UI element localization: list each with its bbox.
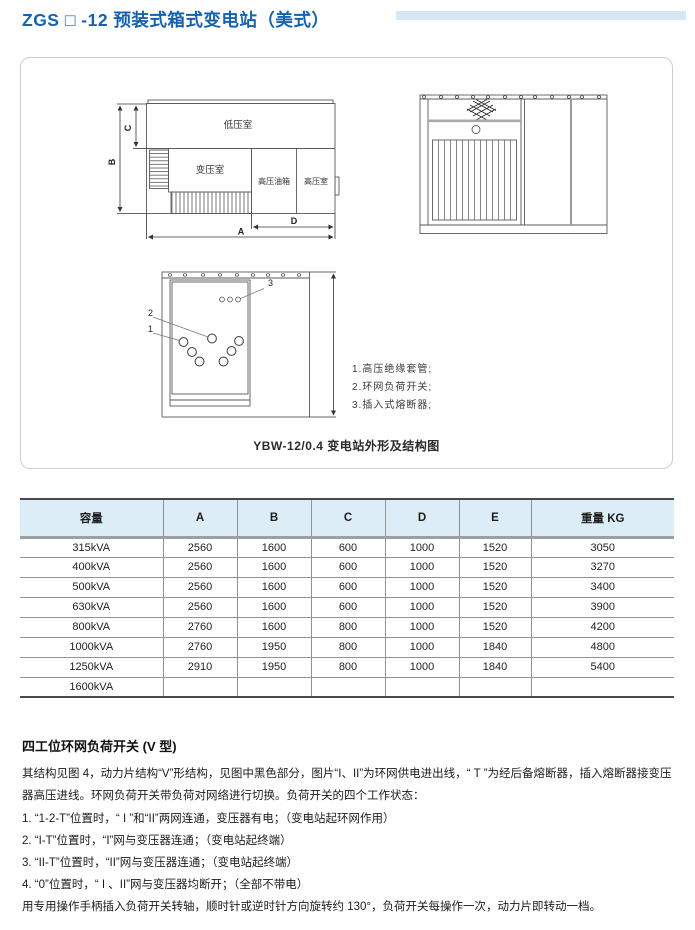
- cell-d: 1000: [385, 597, 459, 617]
- cell-e: 1520: [459, 557, 531, 577]
- table-row: 630kVA 2560 1600 600 1000 1520 3900: [20, 597, 674, 617]
- cell-b: 1600: [237, 617, 311, 637]
- cell-c: [311, 677, 385, 697]
- figure-legend: 1.高压绝缘套管; 2.环网负荷开关; 3.插入式熔断器;: [352, 361, 432, 415]
- cell-capacity: 315kVA: [20, 537, 163, 557]
- table-body: 315kVA 2560 1600 600 1000 1520 3050 400k…: [20, 537, 674, 697]
- cell-e: 1520: [459, 617, 531, 637]
- cell-b: 1600: [237, 597, 311, 617]
- plan-label-hv-room: 高压室: [304, 176, 328, 186]
- cell-capacity: 800kVA: [20, 617, 163, 637]
- dim-label-c: C: [123, 124, 133, 131]
- legend-item-fuse: 3.插入式熔断器;: [352, 397, 432, 415]
- cell-b: 1950: [237, 637, 311, 657]
- cell-b: [237, 677, 311, 697]
- cell-capacity: 400kVA: [20, 557, 163, 577]
- cell-a: 2760: [163, 617, 237, 637]
- cell-c: 600: [311, 557, 385, 577]
- spec-table: 容量 A B C D E 重量 KG 315kVA 2560 1600 600 …: [20, 498, 674, 698]
- emblem-crosshatch-icon: [467, 100, 496, 121]
- dim-label-b: B: [107, 158, 117, 165]
- cell-b: 1600: [237, 557, 311, 577]
- cell-a: [163, 677, 237, 697]
- figure-caption: YBW-12/0.4 变电站外形及结构图: [20, 437, 673, 454]
- cell-capacity: 500kVA: [20, 577, 163, 597]
- cell-b: 1950: [237, 657, 311, 677]
- plan-view-drawing: 低压室 变压室 高压油箱 高压室 B C D A: [95, 95, 345, 245]
- cell-d: 1000: [385, 657, 459, 677]
- table-row: 1250kVA 2910 1950 800 1000 1840 5400: [20, 657, 674, 677]
- cell-b: 1600: [237, 537, 311, 557]
- legend-item-load-switch: 2.环网负荷开关;: [352, 379, 432, 397]
- col-header-capacity: 容量: [20, 499, 163, 537]
- plan-label-transformer-room: 变压室: [196, 164, 225, 176]
- dim-label-d: D: [291, 216, 298, 226]
- cell-d: [385, 677, 459, 697]
- cell-weight: 4800: [531, 637, 674, 657]
- notes-item-3: 3. “II-T”位置时，“II”网与变压器连通；（变电站起终端）: [22, 852, 674, 874]
- table-row: 315kVA 2560 1600 600 1000 1520 3050: [20, 537, 674, 557]
- cell-c: 800: [311, 657, 385, 677]
- notes-item-4: 4. “0”位置时，“ I 、II”网与变压器均断开；（全部不带电）: [22, 874, 674, 896]
- cell-c: 600: [311, 537, 385, 557]
- cell-e: 1520: [459, 597, 531, 617]
- table-row: 400kVA 2560 1600 600 1000 1520 3270: [20, 557, 674, 577]
- title-accent-bar: [396, 11, 686, 20]
- col-header-a: A: [163, 499, 237, 537]
- notes-list: 1. “1-2-T”位置时，“ I ”和“II”两网连通，变压器有电；（变电站起…: [22, 808, 674, 896]
- cell-e: [459, 677, 531, 697]
- cell-e: 1840: [459, 657, 531, 677]
- col-header-c: C: [311, 499, 385, 537]
- cell-c: 600: [311, 597, 385, 617]
- notes-heading: 四工位环网负荷开关 (V 型): [22, 736, 674, 755]
- cell-d: 1000: [385, 577, 459, 597]
- plan-label-low-voltage-room: 低压室: [224, 119, 253, 131]
- legend-item-bushing: 1.高压绝缘套管;: [352, 361, 432, 379]
- cell-b: 1600: [237, 577, 311, 597]
- cell-c: 600: [311, 577, 385, 597]
- plan-label-hv-oil-tank: 高压油箱: [258, 176, 290, 186]
- cell-weight: 3900: [531, 597, 674, 617]
- cell-weight: 3050: [531, 537, 674, 557]
- page-title: ZGS □ -12 预装式箱式变电站（美式）: [22, 7, 329, 32]
- cell-c: 800: [311, 617, 385, 637]
- cell-e: 1840: [459, 637, 531, 657]
- callout-3: 3: [268, 278, 273, 288]
- table-row: 1600kVA: [20, 677, 674, 697]
- cell-d: 1000: [385, 537, 459, 557]
- cell-capacity: 630kVA: [20, 597, 163, 617]
- cell-capacity: 1250kVA: [20, 657, 163, 677]
- cell-capacity: 1000kVA: [20, 637, 163, 657]
- notes-footer: 用专用操作手柄插入负荷开关转轴，顺时针或逆时针方向旋转约 130°，负荷开关每操…: [22, 896, 674, 918]
- cell-weight: [531, 677, 674, 697]
- table-row: 500kVA 2560 1600 600 1000 1520 3400: [20, 577, 674, 597]
- col-header-d: D: [385, 499, 459, 537]
- cell-capacity: 1600kVA: [20, 677, 163, 697]
- notes-item-2: 2. “I-T”位置时，“I”网与变压器连通；（变电站起终端）: [22, 830, 674, 852]
- cell-a: 2910: [163, 657, 237, 677]
- structure-drawing: 3 2 1: [145, 268, 345, 421]
- cell-weight: 3400: [531, 577, 674, 597]
- cell-c: 800: [311, 637, 385, 657]
- col-header-b: B: [237, 499, 311, 537]
- notes-section: 四工位环网负荷开关 (V 型) 其结构见图 4，动力片结构“V”形结构，见图中黑…: [22, 736, 674, 918]
- notes-item-1: 1. “1-2-T”位置时，“ I ”和“II”两网连通，变压器有电；（变电站起…: [22, 808, 674, 830]
- callout-2: 2: [148, 308, 153, 318]
- cell-a: 2560: [163, 597, 237, 617]
- col-header-e: E: [459, 499, 531, 537]
- cell-weight: 3270: [531, 557, 674, 577]
- col-header-weight: 重量 KG: [531, 499, 674, 537]
- table-row: 800kVA 2760 1600 800 1000 1520 4200: [20, 617, 674, 637]
- cell-a: 2560: [163, 557, 237, 577]
- dim-label-a: A: [238, 227, 245, 237]
- cell-d: 1000: [385, 557, 459, 577]
- cell-a: 2560: [163, 537, 237, 557]
- cell-weight: 4200: [531, 617, 674, 637]
- datasheet-page: ZGS □ -12 预装式箱式变电站（美式）: [0, 0, 695, 930]
- front-elevation-drawing: [418, 88, 612, 238]
- table-header-row: 容量 A B C D E 重量 KG: [20, 499, 674, 537]
- notes-paragraph: 其结构见图 4，动力片结构“V”形结构，见图中黑色部分，图片“I、II”为环网供…: [22, 764, 674, 807]
- cell-d: 1000: [385, 617, 459, 637]
- callout-1: 1: [148, 324, 153, 334]
- cell-weight: 5400: [531, 657, 674, 677]
- cell-a: 2560: [163, 577, 237, 597]
- cell-a: 2760: [163, 637, 237, 657]
- cell-d: 1000: [385, 637, 459, 657]
- table-row: 1000kVA 2760 1950 800 1000 1840 4800: [20, 637, 674, 657]
- cell-e: 1520: [459, 577, 531, 597]
- cell-e: 1520: [459, 537, 531, 557]
